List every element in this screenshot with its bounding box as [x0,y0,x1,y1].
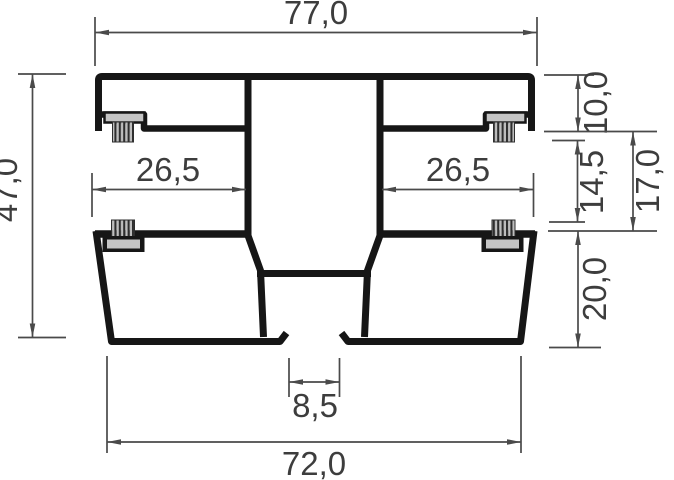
brush-seal-lower-right [482,220,524,252]
dim-label-drain-slot: 8,5 [292,387,338,424]
arrowhead-top [575,231,581,245]
arrowhead-left [92,187,106,193]
dim-label-lower-chamber-height: 20,0 [576,257,613,321]
arrowhead-right [507,439,521,445]
dimension-pocket-left: 26,5 [92,151,246,217]
arrowhead-bottom [630,217,636,231]
dimension-lower-chamber-height: 20,0 [549,231,613,348]
dim-label-pocket-left: 26,5 [136,151,200,188]
dimension-drain-slot: 8,5 [289,358,340,424]
arrowhead-right [520,187,534,193]
brush-bristles [494,122,515,142]
arrowhead-left [107,439,121,445]
profile-top-flange [99,77,532,132]
extension-lines [18,74,66,338]
dim-label-flange-height: 10,0 [577,71,614,135]
brush-cap [486,240,519,249]
brush-seal-lower-left [103,220,145,252]
arrowhead-bottom [575,334,581,348]
dim-label-overall-height: 47,0 [0,158,24,222]
brush-bristles [112,220,135,238]
arrowhead-right [232,187,246,193]
arrowhead-right [523,30,537,36]
brush-cap [107,240,140,249]
arrowhead-right [326,379,340,385]
brush-cap [486,113,526,123]
brush-cap [105,113,145,123]
brush-seal-upper-left [105,113,145,143]
dim-label-seal-gap: 14,5 [573,150,610,214]
arrowhead-left [289,379,303,385]
arrowhead-top [30,74,36,88]
brush-bristles [492,220,515,238]
dimension-overall-height: 47,0 [0,74,66,338]
arrowhead-bottom [30,324,36,338]
dim-label-rebate-height: 17,0 [629,149,666,213]
brush-seal-upper-right [486,113,526,143]
dimension-top-width: 77,0 [95,0,537,66]
profile-drawing: 77,0 47,0 26,5 26,5 10,0 14,5 [0,0,674,480]
dimension-pocket-right: 26,5 [382,151,534,217]
brush-bristles [113,122,134,142]
dimension-seal-gap: 14,5 [549,141,610,223]
arrowhead-left [382,187,396,193]
profile-center-wall-right [365,77,381,337]
dimension-flange-height: 10,0 [544,71,614,135]
dim-label-top-width: 77,0 [284,0,348,31]
dim-label-pocket-right: 26,5 [426,151,490,188]
arrowhead-top [630,132,636,146]
profile-center-wall-left [248,77,264,337]
dim-label-bottom-width: 72,0 [282,445,346,480]
technical-drawing-canvas: 77,0 47,0 26,5 26,5 10,0 14,5 [0,0,674,480]
profile-cross-section [95,77,535,342]
arrowhead-left [95,30,109,36]
